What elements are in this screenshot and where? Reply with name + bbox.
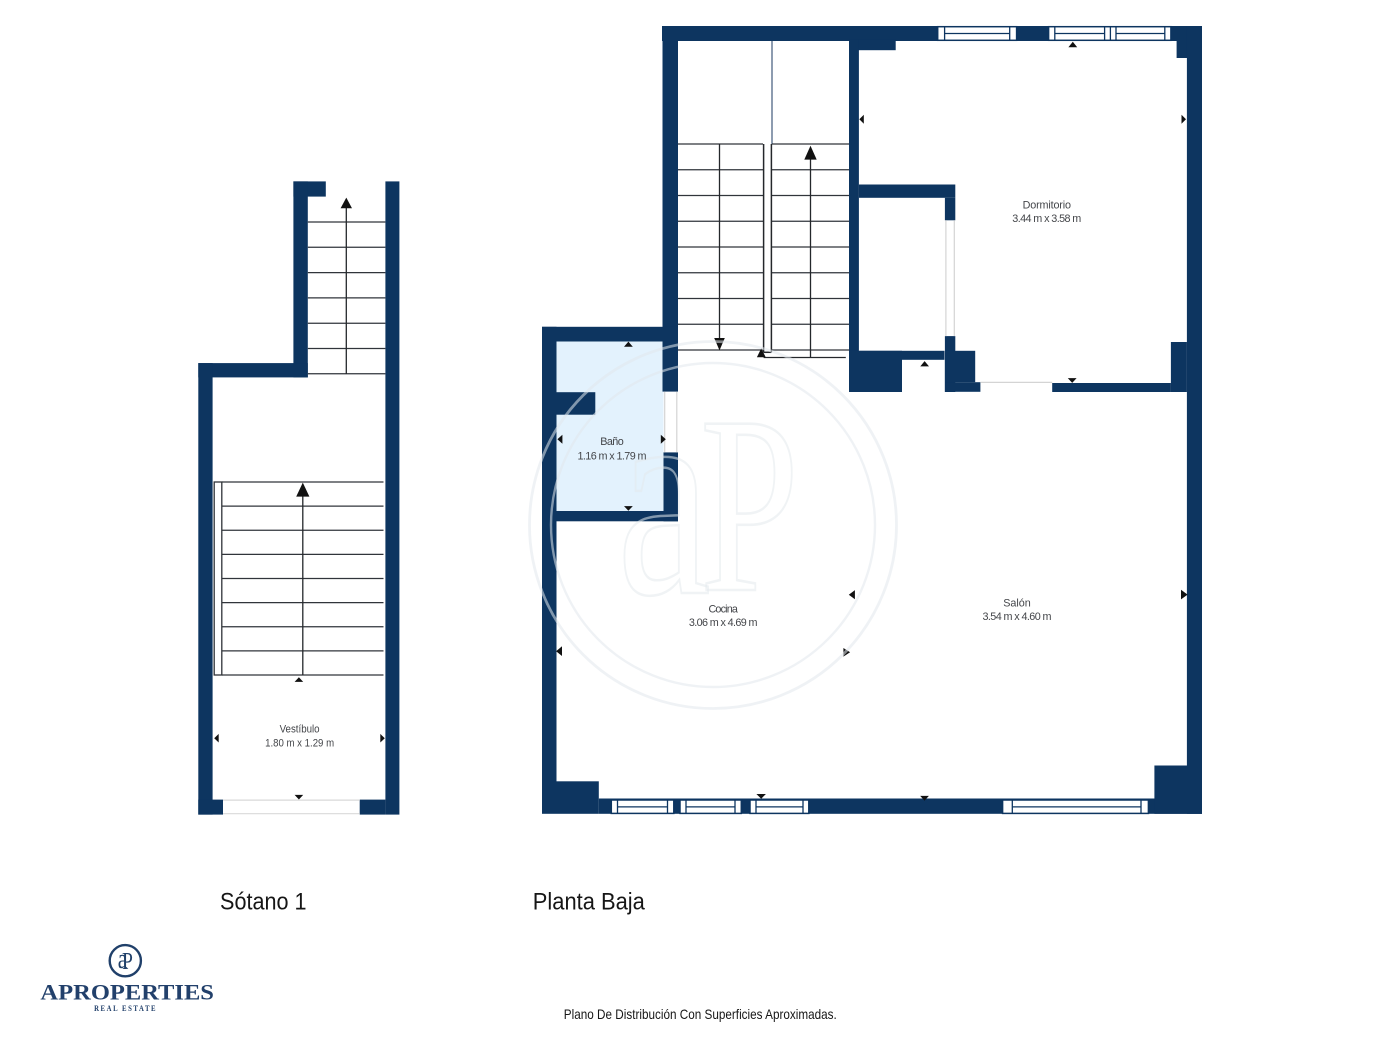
svg-text:a: a [617, 335, 711, 656]
svg-text:Plano De Distribución Con Supe: Plano De Distribución Con Superficies Ap… [564, 1007, 837, 1022]
svg-text:Planta Baja: Planta Baja [533, 890, 646, 916]
svg-text:a: a [118, 944, 128, 974]
svg-text:Dormitorio: Dormitorio [1023, 199, 1071, 211]
svg-text:3.54 m x 4.60 m: 3.54 m x 4.60 m [983, 611, 1052, 623]
svg-text:Sótano 1: Sótano 1 [220, 890, 307, 916]
svg-text:APROPERTIES: APROPERTIES [40, 980, 214, 1005]
svg-text:3.06 m x 4.69 m: 3.06 m x 4.69 m [689, 617, 758, 629]
svg-text:1.16 m x 1.79 m: 1.16 m x 1.79 m [578, 450, 647, 462]
svg-text:REAL ESTATE: REAL ESTATE [94, 1003, 157, 1013]
svg-text:1.80 m x 1.29 m: 1.80 m x 1.29 m [265, 738, 334, 750]
svg-text:Salón: Salón [1003, 598, 1031, 610]
svg-text:Vestíbulo: Vestíbulo [280, 724, 320, 736]
svg-text:3.44 m x 3.58 m: 3.44 m x 3.58 m [1012, 213, 1081, 225]
svg-text:Cocina: Cocina [708, 603, 738, 615]
svg-text:Baño: Baño [600, 436, 624, 448]
